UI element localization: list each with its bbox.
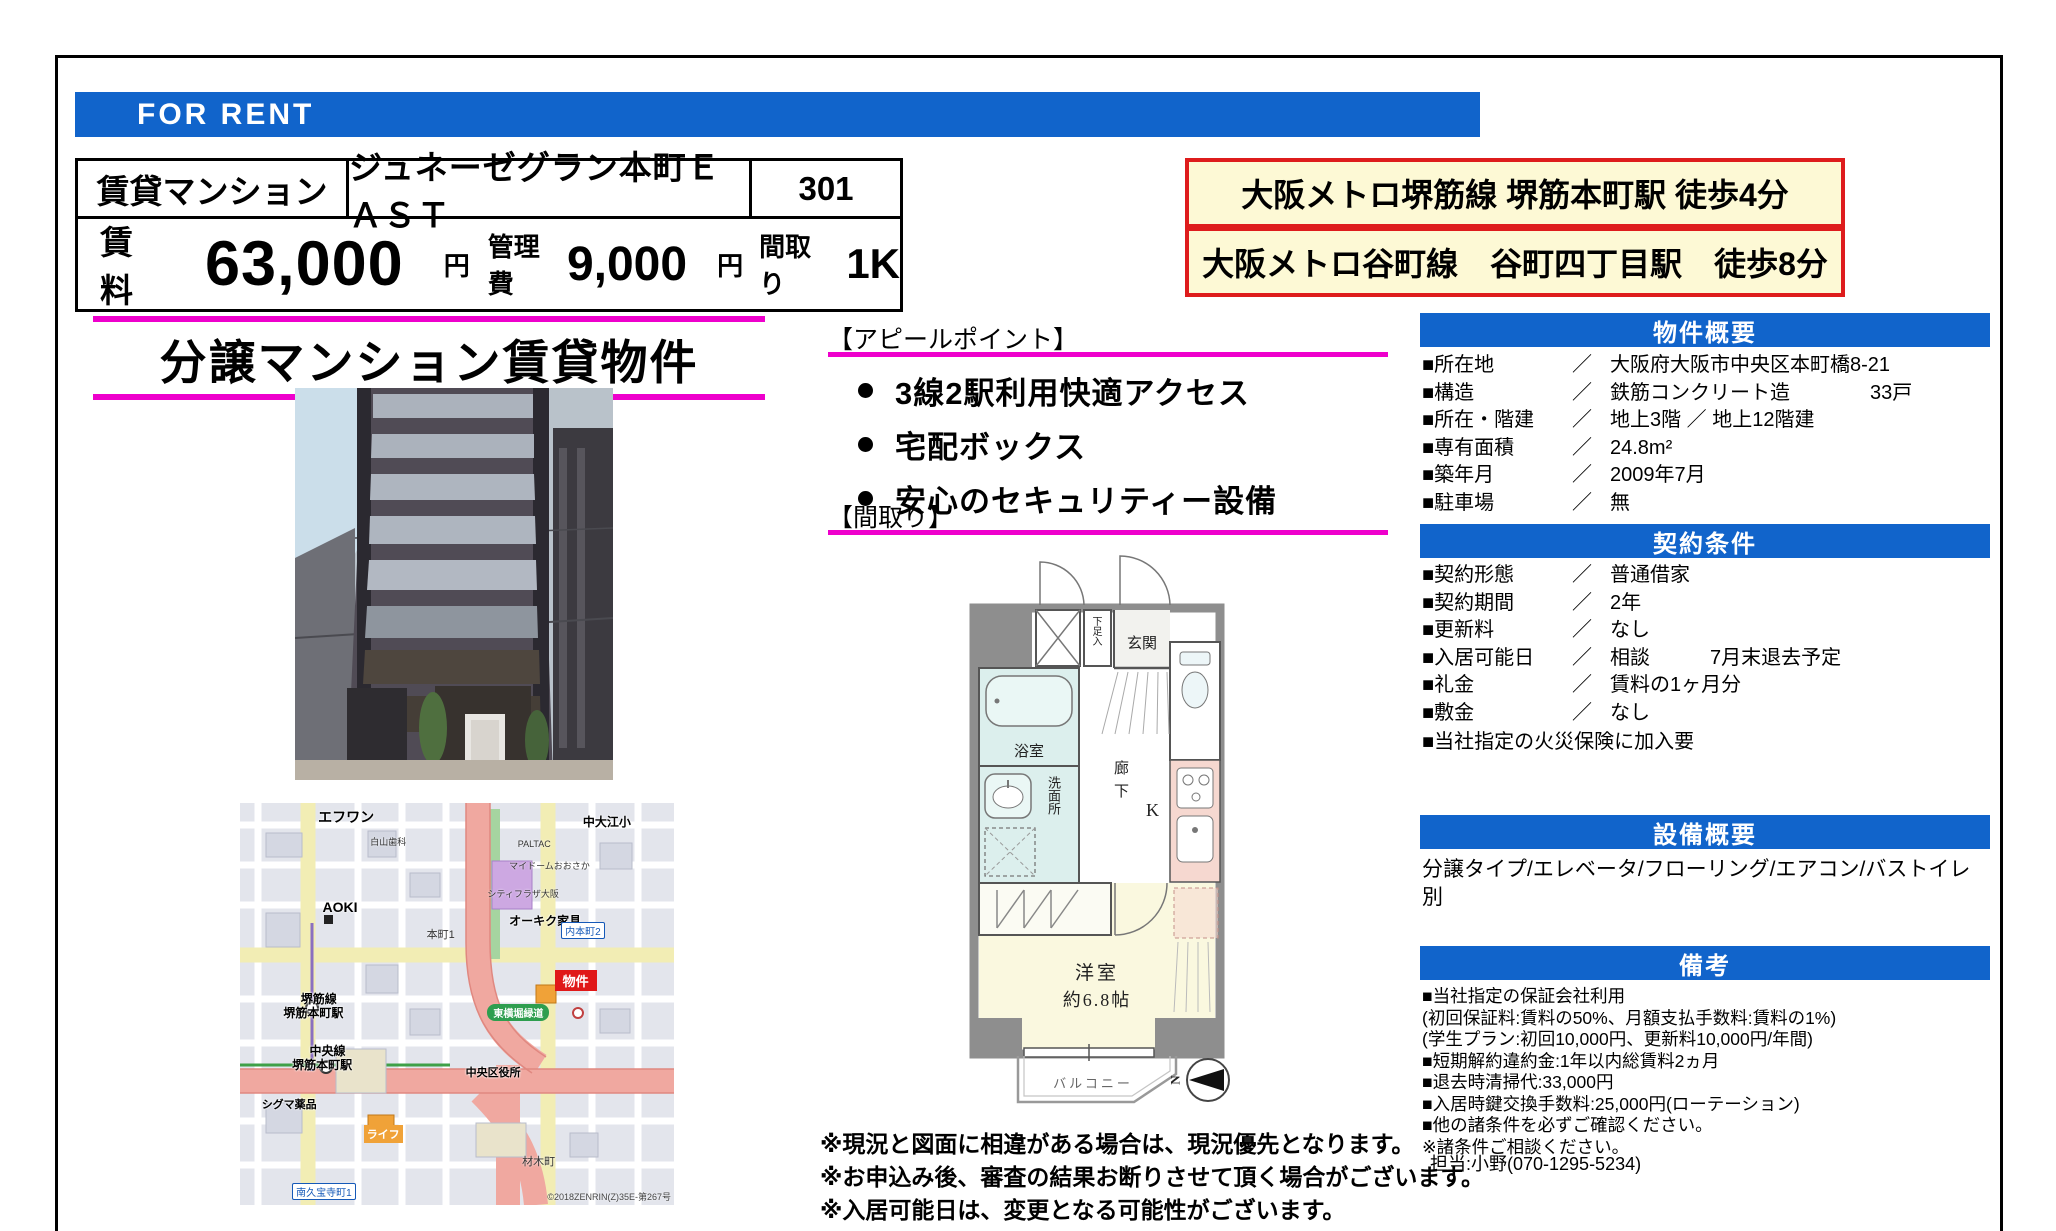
- map-label: 中大江小: [583, 813, 631, 830]
- floorplan-label-genkan: 玄関: [1114, 632, 1170, 653]
- remark-line: ■他の諸条件を必ずご確認ください。: [1422, 1115, 1988, 1137]
- floorplan-label-shoebox: 下足入: [1088, 616, 1103, 646]
- floorplan-label-balcony: バルコニー: [1018, 1073, 1168, 1092]
- spec-row: ■専有面積／24.8m²: [1422, 435, 1988, 463]
- for-rent-banner: FOR RENT: [75, 92, 1480, 137]
- management-fee-label: 管理費: [488, 227, 541, 301]
- floorplan-label-bath: 浴室: [979, 740, 1079, 761]
- rental-flyer: FOR RENT 賃貸マンション ジュネーゼグラン本町ＥＡＳＴ 301 賃料 6…: [0, 0, 2056, 1231]
- remark-line: ■入居時鍵交換手数料:25,000円(ローテーション): [1422, 1094, 1988, 1116]
- spec-row: ■所在地／大阪府大阪市中央区本町橋8-21: [1422, 352, 1988, 380]
- access-line-2: 大阪メトロ谷町線 谷町四丁目駅 徒歩8分: [1185, 227, 1845, 297]
- note-line: ※現況と図面に相違がある場合は、現況優先となります。: [820, 1128, 1484, 1161]
- appeal-heading: 【アピールポイント】: [828, 320, 1078, 356]
- appeal-underline: [828, 352, 1388, 357]
- map-label: 本町1: [427, 926, 455, 942]
- remarks-list: ■当社指定の保証会社利用 (初回保証料:賃料の50%、月額支払手数料:賃料の1%…: [1422, 986, 1988, 1158]
- building-name: ジュネーゼグラン本町ＥＡＳＴ: [349, 161, 752, 216]
- layout-value: 1K: [846, 240, 900, 288]
- appeal-item: 宅配ボックス: [858, 422, 1277, 467]
- property-type: 賃貸マンション: [78, 161, 349, 216]
- floorplan-heading: 【間取り】: [828, 498, 953, 534]
- facilities-header: 設備概要: [1420, 815, 1990, 849]
- map-label: AOKI: [322, 899, 357, 915]
- map-label: 中央区役所: [466, 1064, 521, 1080]
- overview-header: 物件概要: [1420, 313, 1990, 347]
- contract-header: 契約条件: [1420, 524, 1990, 558]
- map-label: 材木町: [522, 1153, 555, 1169]
- building-photo: [295, 388, 613, 780]
- spec-row: ■築年月／2009年7月: [1422, 462, 1988, 490]
- spec-row: ■構造／鉄筋コンクリート造 33戸: [1422, 380, 1988, 408]
- map-label: エフワン: [318, 807, 374, 827]
- building-photo-image: [295, 388, 613, 780]
- header-row-rent: 賃料 63,000 円 管理費 9,000 円 間取り 1K: [78, 219, 900, 309]
- remark-line: ■当社指定の保証会社利用: [1422, 986, 1988, 1008]
- remarks-header: 備考: [1420, 946, 1990, 980]
- rent-unit: 円: [444, 246, 470, 283]
- room-number: 301: [752, 161, 900, 216]
- map-label: マイドームおおさか: [509, 859, 590, 872]
- overview-list: ■所在地／大阪府大阪市中央区本町橋8-21 ■構造／鉄筋コンクリート造 33戸 …: [1422, 352, 1988, 517]
- floorplan-label-room-size: 約6.8帖: [979, 986, 1215, 1012]
- map-label: 南久宝寺町1: [292, 1183, 356, 1200]
- remark-line: ■短期解約違約金:1年以内総賃料2ヵ月: [1422, 1051, 1988, 1073]
- spec-row: ■所在・階建／地上3階 ／ 地上12階建: [1422, 407, 1988, 435]
- management-fee-unit: 円: [717, 246, 743, 283]
- spec-row: ■更新料／なし: [1422, 617, 1988, 645]
- note-line: ※入居可能日は、変更となる可能性がございます。: [820, 1194, 1484, 1227]
- appeal-item: 3線2駅利用快適アクセス: [858, 368, 1277, 413]
- spec-row: ■駐車場／無: [1422, 490, 1988, 518]
- map-label: 白山歯科: [370, 835, 406, 848]
- rent-label: 賃料: [100, 216, 145, 312]
- facilities-text: 分譲タイプ/エレベータ/フローリング/エアコン/バストイレ別: [1422, 856, 1978, 912]
- contract-list: ■契約形態／普通借家 ■契約期間／2年 ■更新料／なし ■入居可能日／相談 7月…: [1422, 562, 1988, 757]
- remark-line: ■退去時清掃代:33,000円: [1422, 1072, 1988, 1094]
- spec-row: ■契約形態／普通借家: [1422, 562, 1988, 590]
- contract-insurance-note: ■当社指定の火災保険に加入要: [1422, 729, 1988, 757]
- map-label: 堺筋本町駅: [283, 1004, 343, 1021]
- spec-row: ■入居可能日／相談 7月末退去予定: [1422, 645, 1988, 673]
- floorplan-underline: [828, 530, 1388, 535]
- spec-row: ■敷金／なし: [1422, 700, 1988, 728]
- spec-row: ■礼金／賃料の1ヶ月分: [1422, 672, 1988, 700]
- spec-row: ■契約期間／2年: [1422, 590, 1988, 618]
- disclaimer-notes: ※現況と図面に相違がある場合は、現況優先となります。 ※お申込み後、審査の結果お…: [820, 1128, 1484, 1227]
- header-row-title: 賃貸マンション ジュネーゼグラン本町ＥＡＳＴ 301: [78, 161, 900, 219]
- floorplan-drawing: 玄関 下足入 浴室 洗面所 廊下 K 洋室 約6.8帖 バルコニー N: [952, 550, 1252, 1130]
- rent-value: 63,000: [205, 228, 404, 300]
- floorplan-label-corridor: 廊下: [1110, 760, 1131, 806]
- map-copyright: ©2018ZENRIN(Z)35E-第267号: [547, 1190, 671, 1203]
- floorplan-north-arrow: N: [1168, 1075, 1184, 1084]
- map-label: 東横堀緑道: [487, 1004, 549, 1021]
- layout-label: 間取り: [759, 227, 812, 301]
- neighborhood-map: エフワン 中大江小 白山歯科 PALTAC マイドームおおさか シティフラザ大阪…: [240, 803, 674, 1205]
- bullet-icon: [858, 437, 873, 452]
- map-label: シグマ薬品: [262, 1096, 317, 1112]
- floorplan-label-room: 洋室: [979, 958, 1215, 985]
- map-label-property: 物件: [555, 970, 597, 991]
- property-header-table: 賃貸マンション ジュネーゼグラン本町ＥＡＳＴ 301 賃料 63,000 円 管…: [75, 158, 903, 312]
- access-line-1: 大阪メトロ堺筋線 堺筋本町駅 徒歩4分: [1185, 158, 1845, 228]
- management-fee-value: 9,000: [567, 237, 687, 292]
- remark-line: (初回保証料:賃料の50%、月額支払手数料:賃料の1%): [1422, 1008, 1988, 1030]
- map-label: PALTAC: [518, 839, 551, 849]
- floorplan-label-washroom: 洗面所: [1044, 776, 1063, 815]
- map-label: ライフ: [364, 1125, 403, 1143]
- note-line: ※お申込み後、審査の結果お断りさせて頂く場合がございます。: [820, 1161, 1484, 1194]
- map-label: 内本町2: [561, 922, 605, 939]
- map-label: シティフラザ大阪: [487, 887, 558, 900]
- bullet-icon: [858, 383, 873, 398]
- floorplan-label-kitchen: K: [1146, 800, 1159, 821]
- remark-line: (学生プラン:初回10,000円、更新料10,000円/年間): [1422, 1029, 1988, 1051]
- map-label: 堺筋本町駅: [292, 1056, 352, 1073]
